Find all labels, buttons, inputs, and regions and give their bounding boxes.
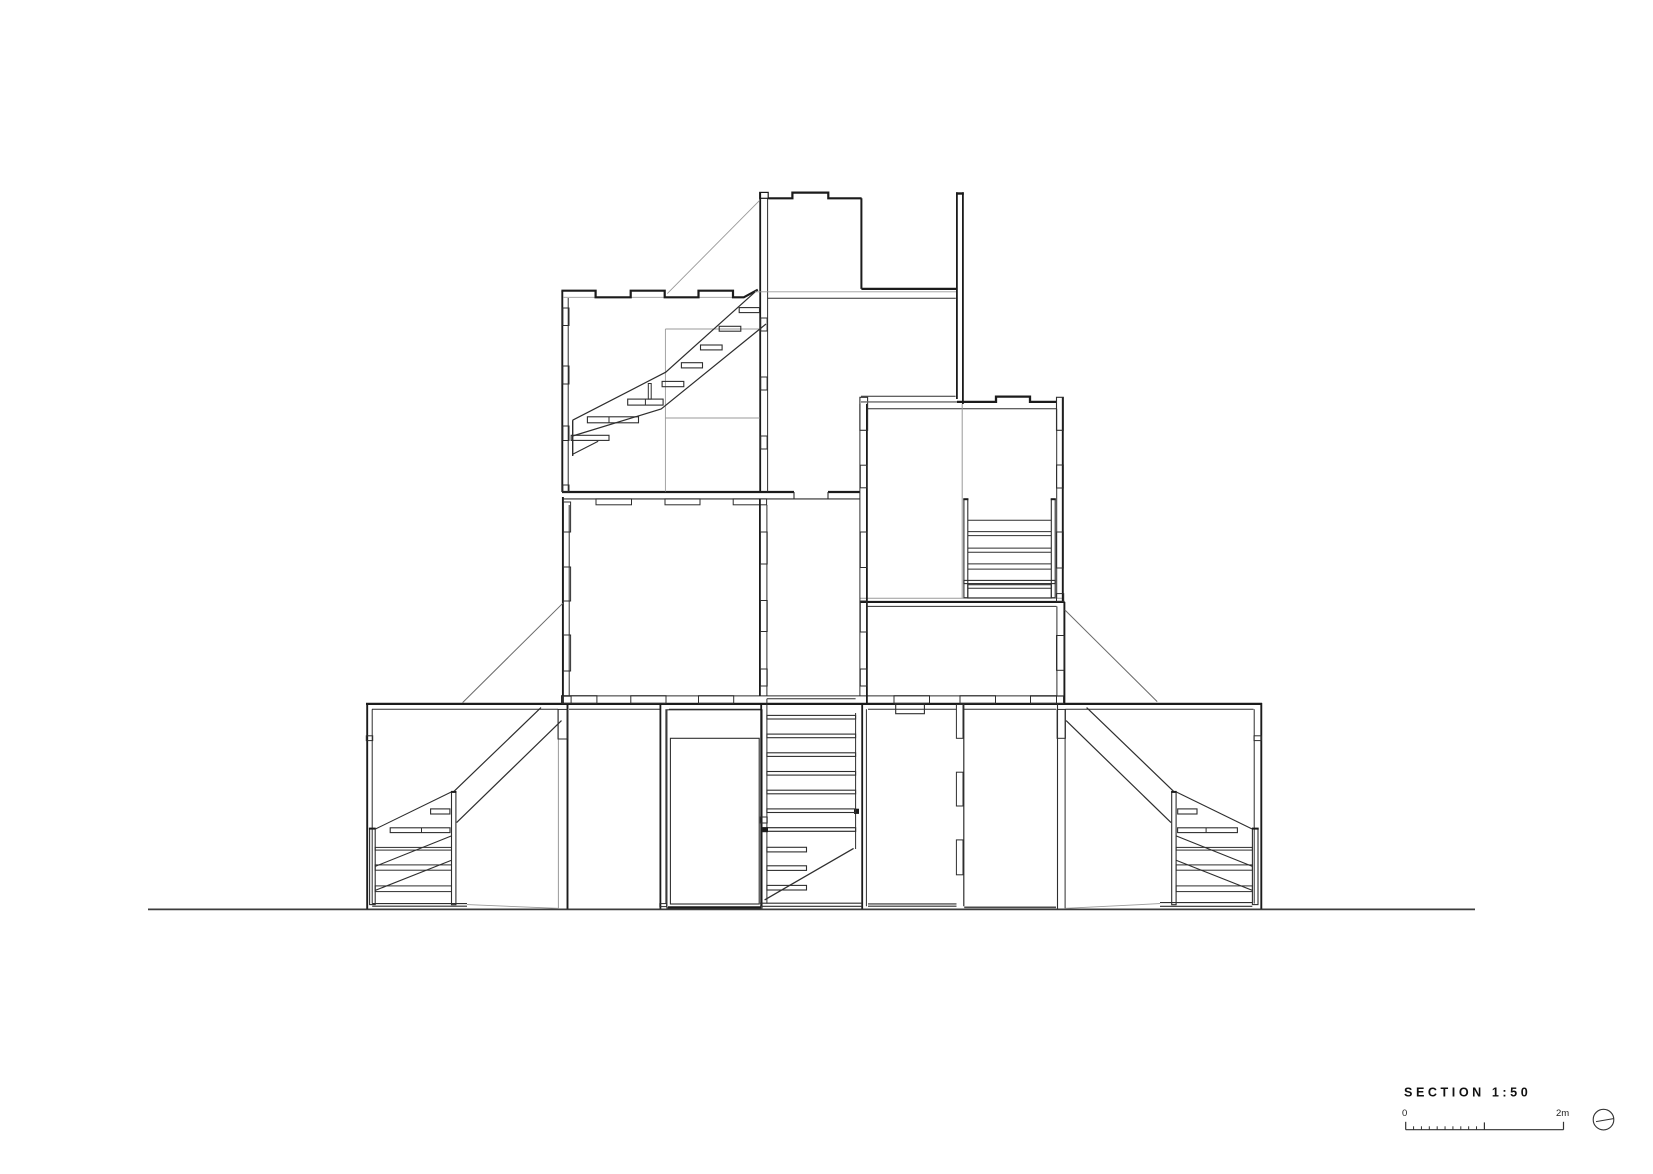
svg-text:SECTION 1:50: SECTION 1:50 (1404, 1086, 1531, 1100)
svg-text:2m: 2m (1556, 1108, 1569, 1119)
svg-text:0: 0 (1402, 1108, 1407, 1119)
